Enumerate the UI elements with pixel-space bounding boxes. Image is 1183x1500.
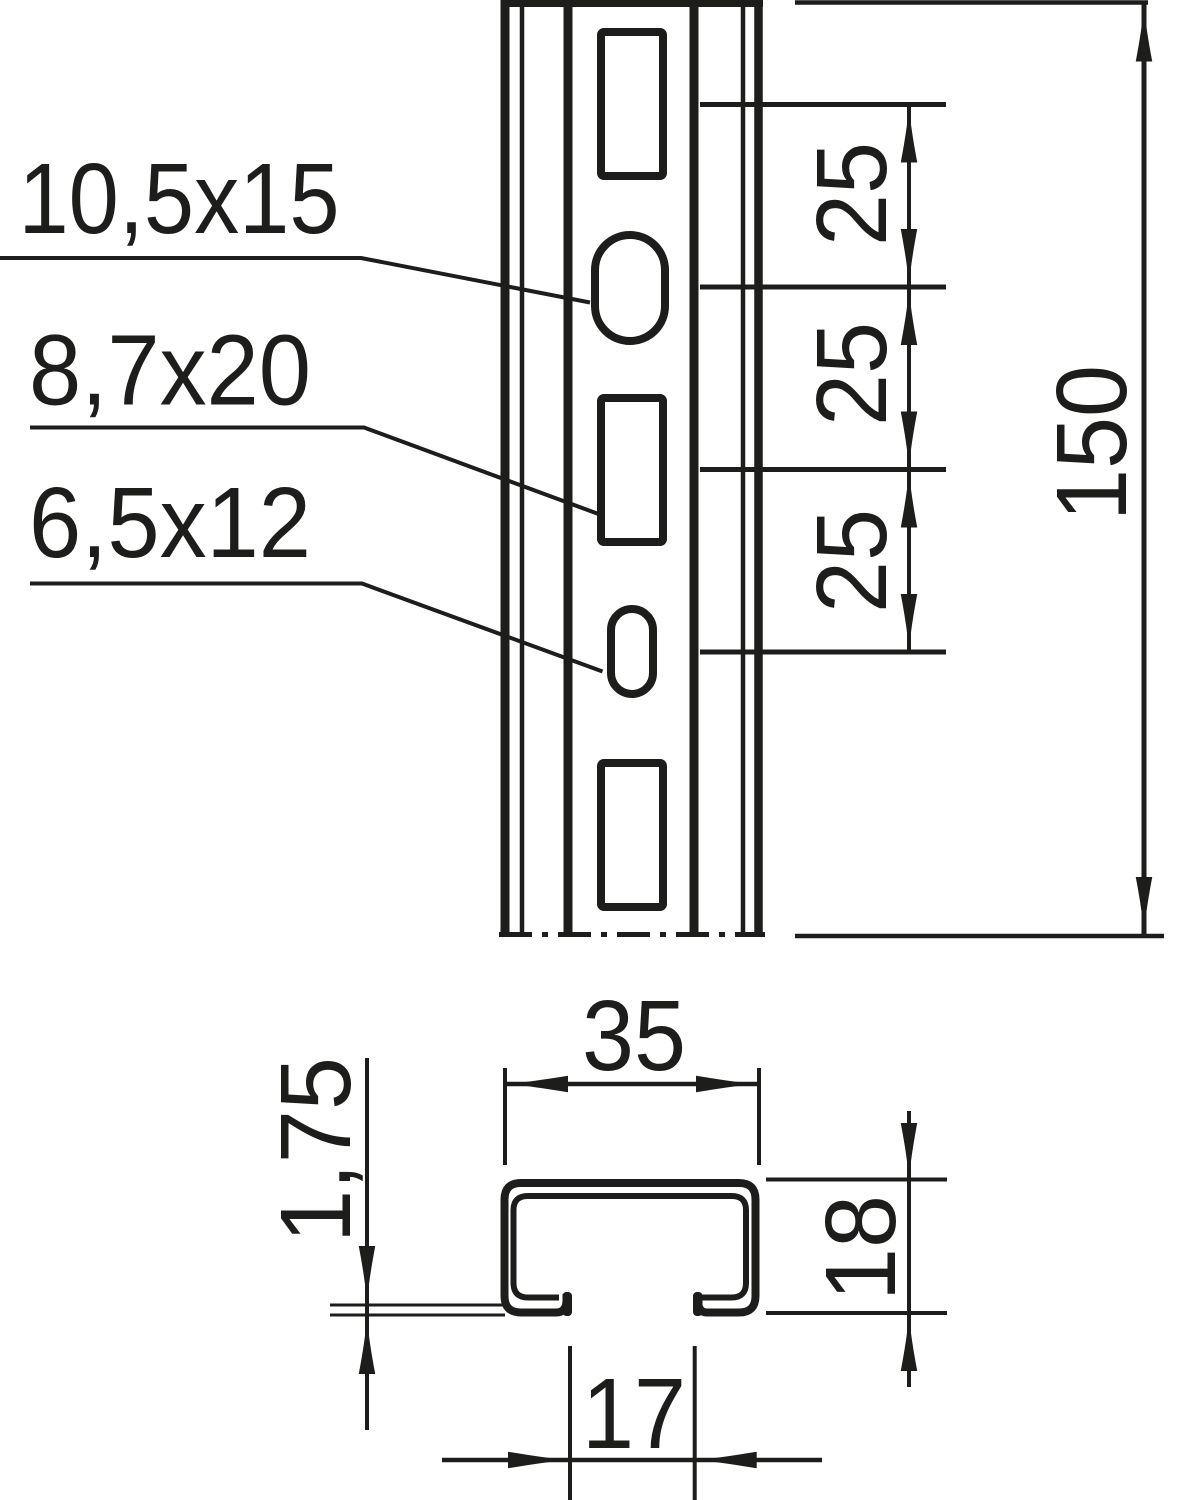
svg-text:150: 150 — [1036, 365, 1148, 521]
svg-text:35: 35 — [582, 980, 686, 1092]
svg-text:17: 17 — [582, 1358, 686, 1470]
svg-text:18: 18 — [805, 1195, 917, 1301]
svg-text:1,75: 1,75 — [260, 1057, 372, 1243]
svg-text:6,5x12: 6,5x12 — [29, 467, 311, 579]
svg-text:25: 25 — [796, 142, 908, 246]
svg-text:8,7x20: 8,7x20 — [29, 315, 311, 427]
svg-text:10,5x15: 10,5x15 — [19, 143, 340, 255]
svg-text:25: 25 — [796, 322, 908, 426]
svg-text:25: 25 — [796, 509, 908, 613]
